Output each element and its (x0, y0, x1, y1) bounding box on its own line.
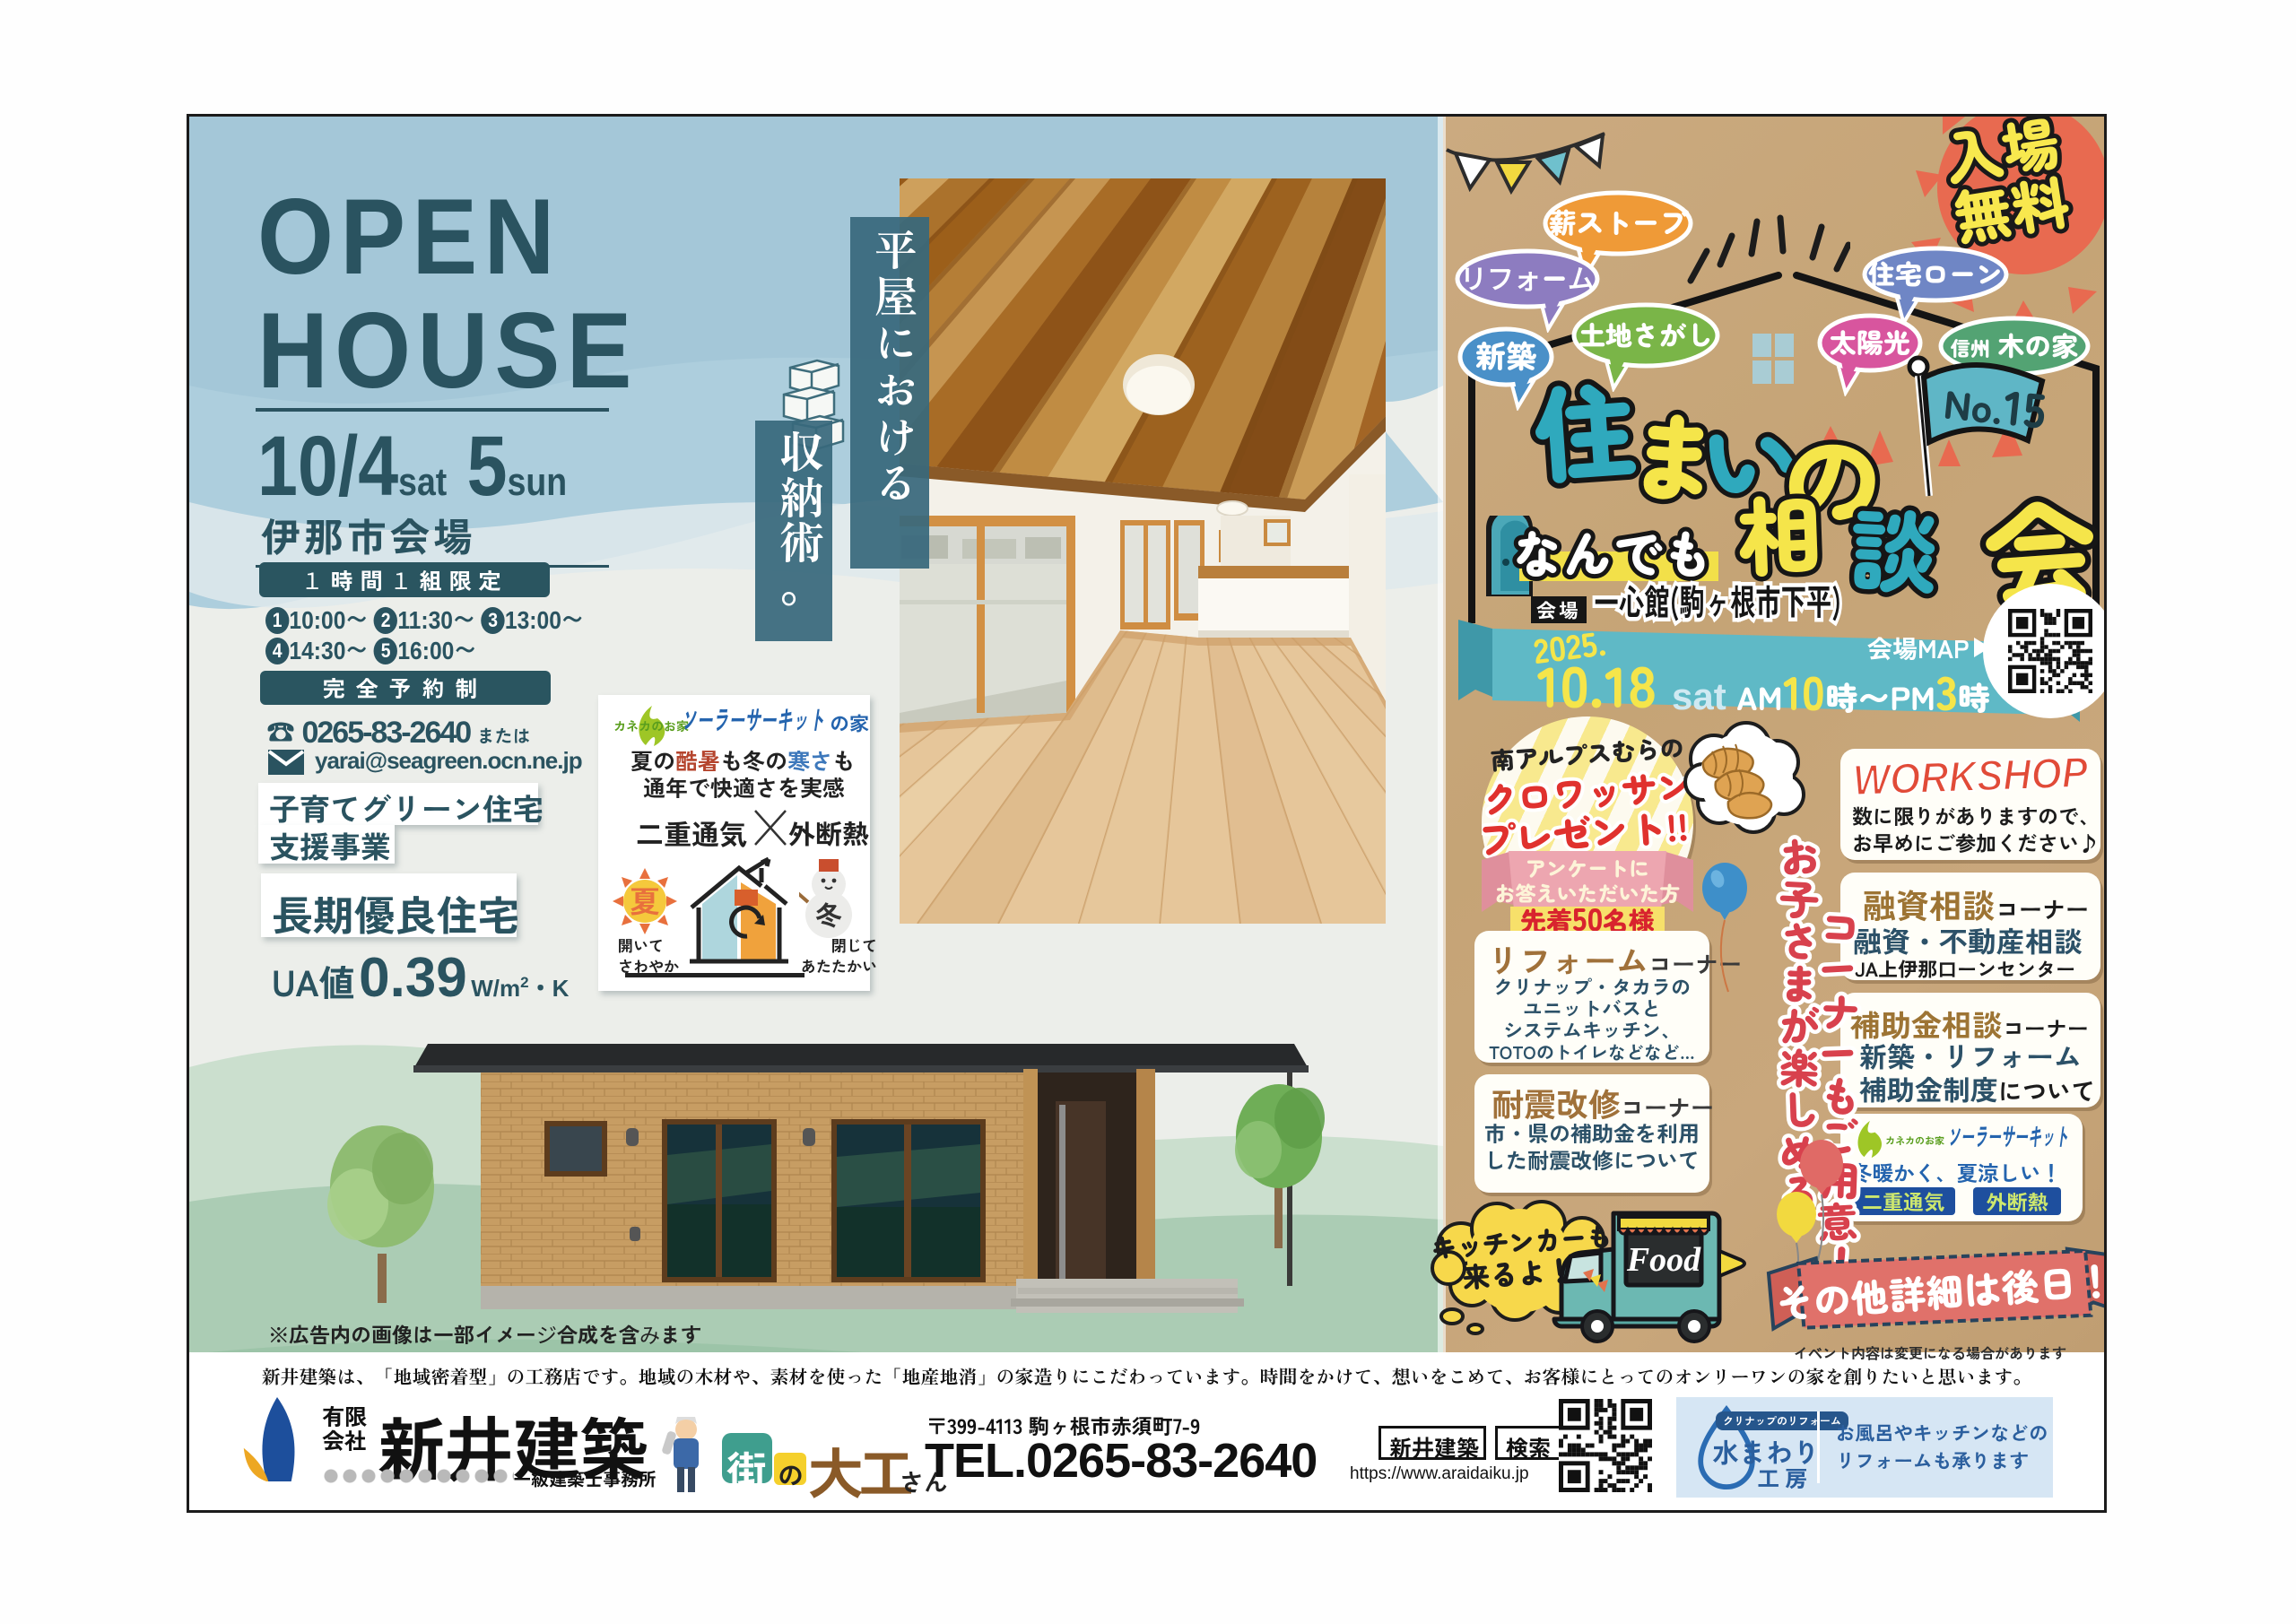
svg-text:土地さがし: 土地さがし (1578, 314, 1713, 353)
svg-text:冬: 冬 (815, 894, 842, 934)
svg-text:夏: 夏 (630, 878, 660, 922)
svg-text:の家: の家 (830, 708, 869, 737)
svg-text:ソーラーサーキット: ソーラーサーキット (681, 701, 824, 738)
svg-text:一心館(駒ヶ根市下平): 一心館(駒ヶ根市下平) (1594, 576, 1841, 626)
svg-text:住宅ローン: 住宅ローン (1868, 253, 2003, 292)
svg-text:Food: Food (1626, 1241, 1701, 1279)
svg-text:ソーラーサーキット: ソーラーサーキット (1947, 1119, 2068, 1154)
svg-text:リフォーム: リフォーム (1460, 257, 1595, 297)
svg-text:WORKSHOP: WORKSHOP (1852, 749, 2090, 803)
svg-text:薪ストーブ: 薪ストーブ (1549, 201, 1690, 241)
svg-text:無料: 無料 (1948, 158, 2074, 257)
